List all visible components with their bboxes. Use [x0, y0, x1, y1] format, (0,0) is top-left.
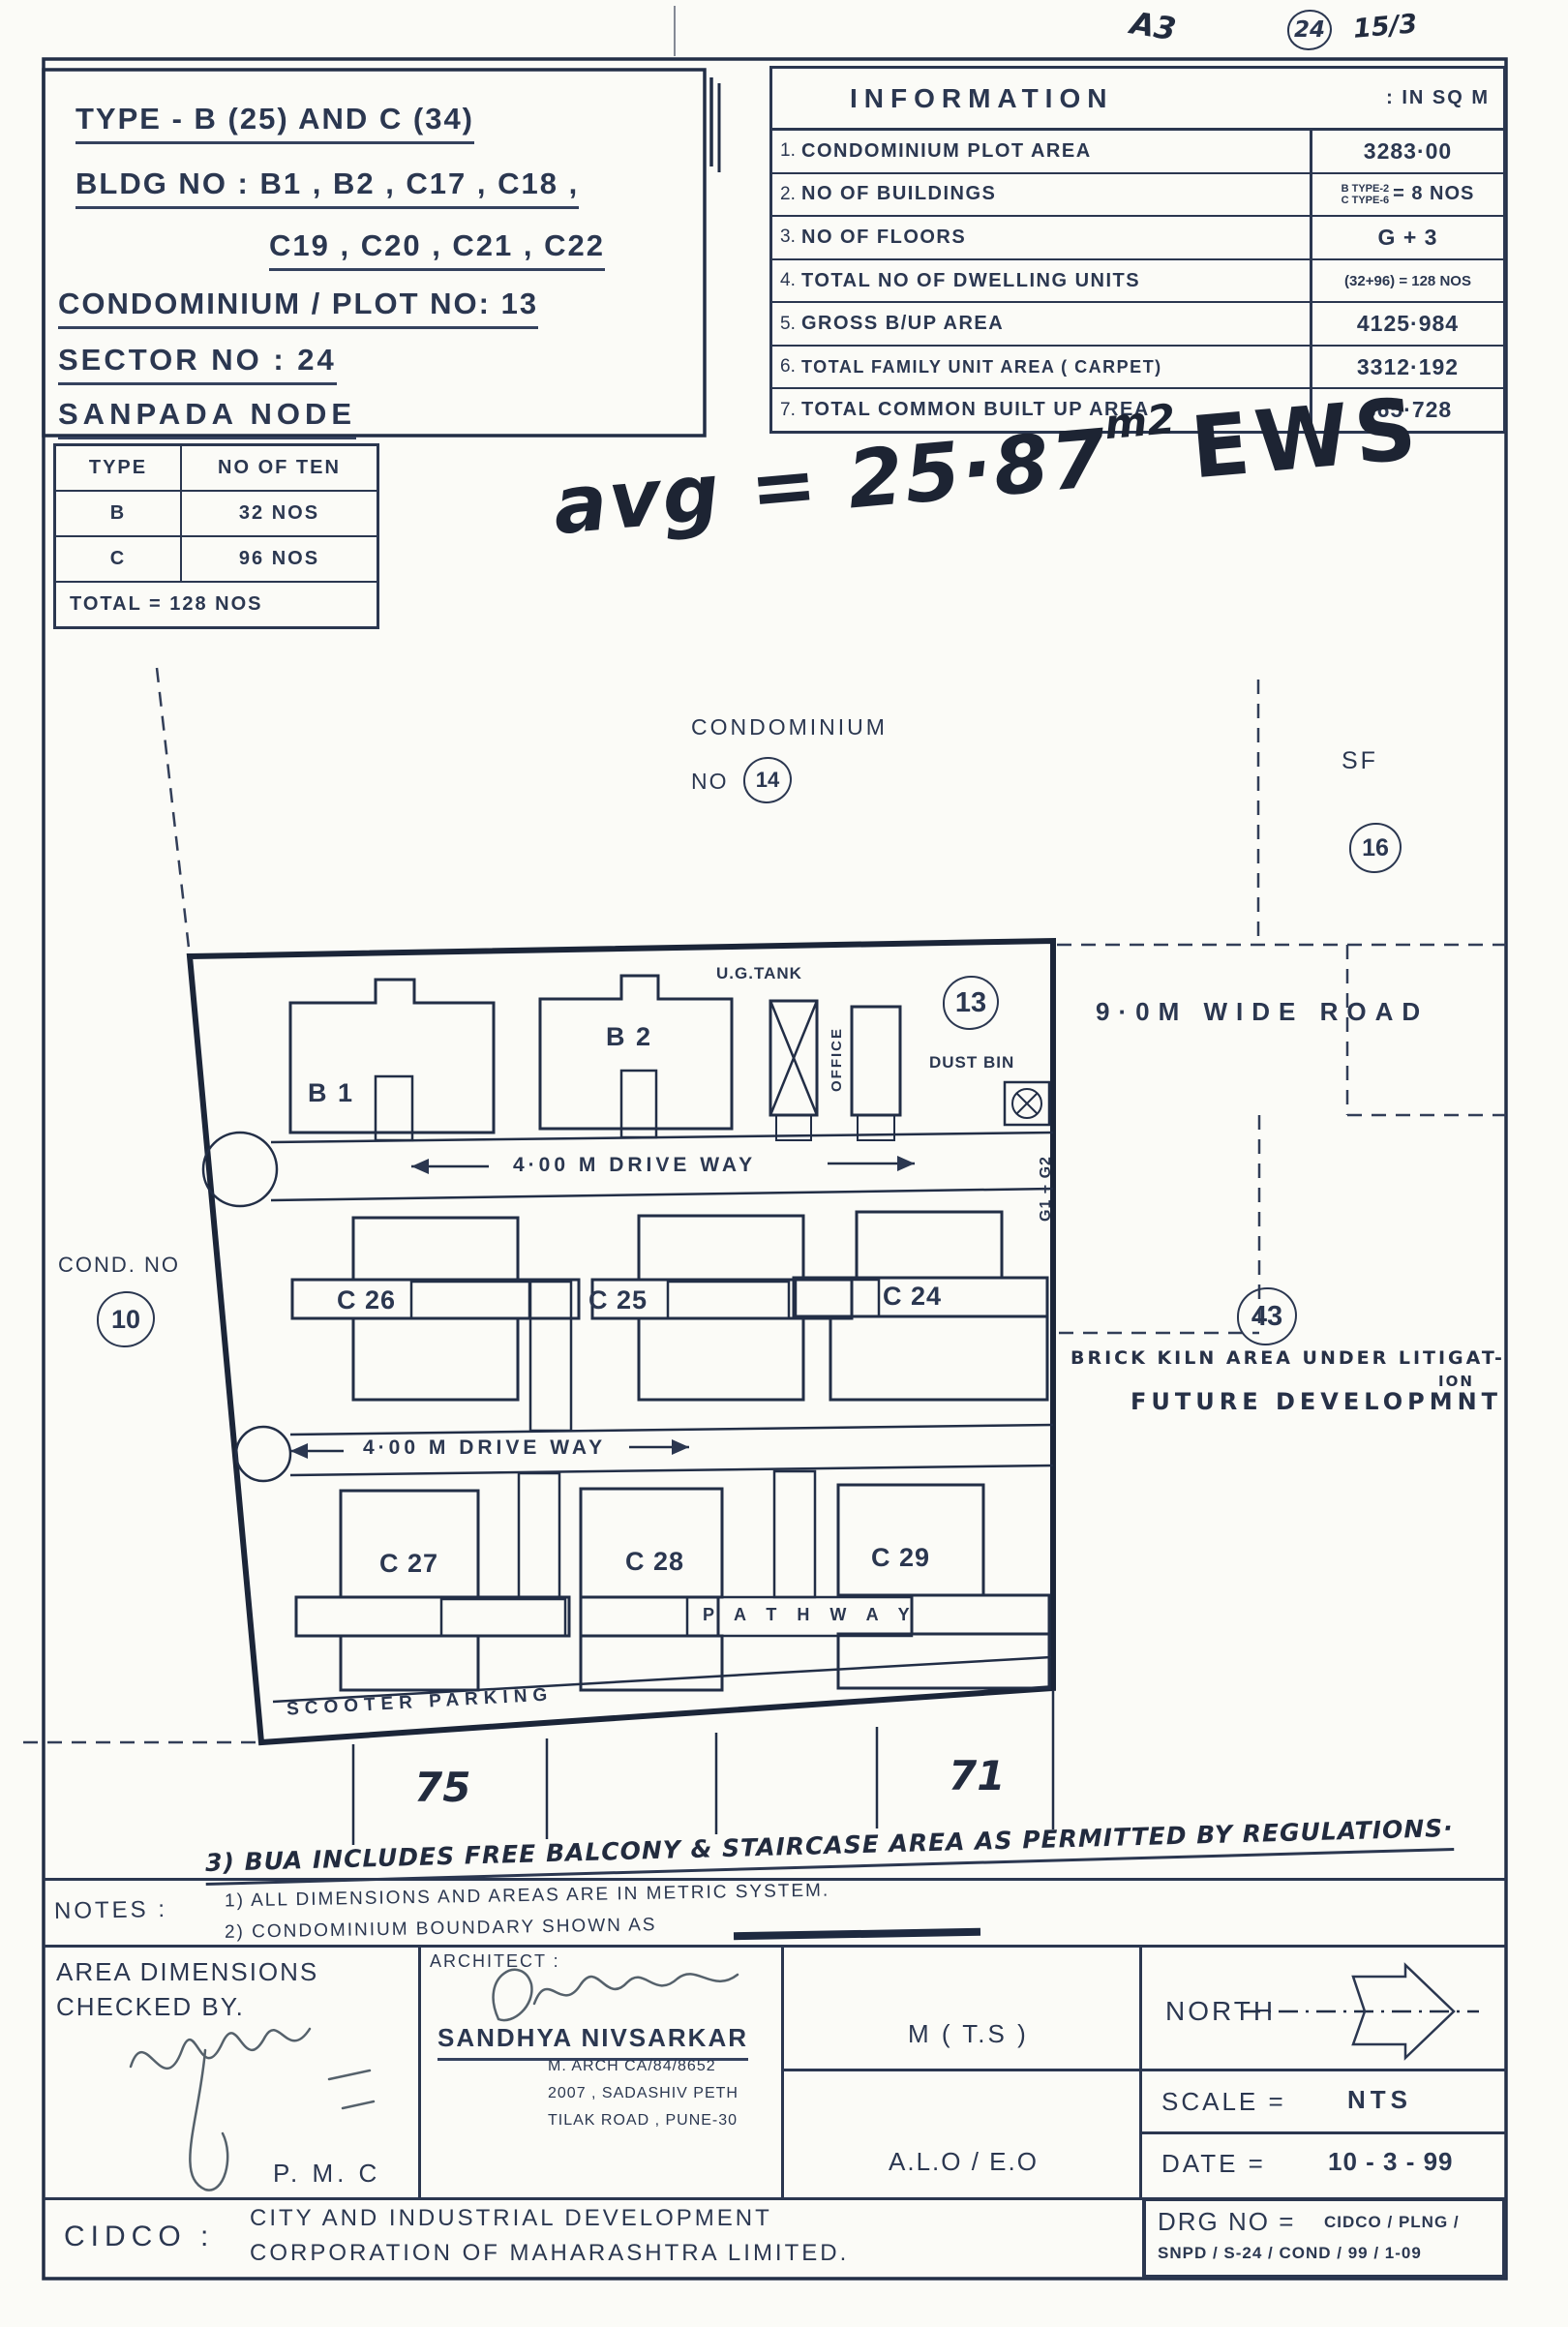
info-row-4-value: (32+96) = 128 NOS [1310, 260, 1503, 302]
type-table-header: TYPE NO OF TEN [56, 446, 377, 492]
info-row-3-value-text: G + 3 [1378, 225, 1438, 251]
building-b2-outline [540, 976, 732, 1129]
driveway2-arrowhead-left [290, 1443, 308, 1459]
info-row-2-sub2: C TYPE-6 [1342, 195, 1390, 206]
c26-stair-strip [411, 1282, 529, 1318]
type-total: TOTAL = 128 NOS [56, 583, 377, 626]
info-row-2-value-text: = 8 NOS [1393, 183, 1474, 205]
north-label: NORTH [1165, 1996, 1276, 2027]
info-row-7-no: 7. [772, 389, 801, 431]
ug-tank-label: U.G.TANK [716, 964, 802, 983]
info-row-1: 1. CONDOMINIUM PLOT AREA 3283·00 [772, 131, 1503, 174]
scale-label: SCALE = [1161, 2087, 1286, 2117]
info-row-2-sub: B TYPE-2C TYPE-6 [1342, 183, 1390, 206]
architect-name: SANDHYA NIVSARKAR [437, 2023, 748, 2061]
building-c28-label: C 28 [625, 1547, 684, 1577]
driveway1-arrowhead-right [897, 1156, 915, 1171]
info-row-4-label: TOTAL NO OF DWELLING UNITS [801, 260, 1310, 302]
drg-no-label: DRG NO = [1158, 2207, 1295, 2237]
condominium-14-label: CONDOMINIUM [691, 714, 888, 740]
type-row-c: C 96 NOS [56, 537, 377, 583]
building-b2-label: B 2 [606, 1022, 652, 1052]
info-row-5-value-text: 4125·984 [1357, 311, 1459, 337]
info-row-4-no: 4. [772, 260, 801, 302]
info-row-6-value-text: 3312·192 [1357, 354, 1459, 380]
culdesac-1 [203, 1133, 277, 1206]
driveway1-arrowhead-left [411, 1159, 429, 1174]
c26-c25-stair-column [530, 1282, 571, 1431]
info-row-1-label: CONDOMINIUM PLOT AREA [801, 131, 1310, 172]
c27-c28-stair-column [519, 1473, 559, 1597]
information-table: INFORMATION : IN SQ M 1. CONDOMINIUM PLO… [769, 66, 1506, 434]
alo-eo-label: A.L.O / E.O [889, 2147, 1039, 2177]
checked-by-label-2: CHECKED BY. [56, 1992, 245, 2022]
info-row-2-sub1: B TYPE-2 [1342, 183, 1390, 195]
dust-bin-label: DUST BIN [929, 1053, 1014, 1073]
type-c: C [56, 537, 182, 581]
mts-cell [784, 1948, 1142, 2071]
dimension-71: 71 [949, 1752, 1005, 1799]
info-row-6-label: TOTAL FAMILY UNIT AREA ( CARPET) [801, 347, 1310, 388]
building-b1-label: B 1 [308, 1078, 354, 1108]
drg-no-value-2: SNPD / S-24 / COND / 99 / 1-09 [1158, 2244, 1422, 2263]
info-row-5-value: 4125·984 [1310, 303, 1503, 345]
driveway1-label: 4·00 M DRIVE WAY [513, 1154, 756, 1177]
driveway2-arrowhead-right [672, 1439, 689, 1455]
pmc-label: P. M. C [273, 2159, 380, 2189]
building-c26-label: C 26 [337, 1285, 396, 1315]
title-sector-line: SECTOR NO : 24 [58, 343, 337, 385]
title-bldg-line1: BLDG NO : B1 , B2 , C17 , C18 , [75, 166, 579, 209]
condominium-boundary [190, 941, 1053, 1742]
info-row-5: 5. GROSS B/UP AREA 4125·984 [772, 303, 1503, 347]
type-b-count: 32 NOS [182, 492, 377, 535]
mts-label: M ( T.S ) [908, 2019, 1029, 2049]
date-value: 10 - 3 - 99 [1328, 2147, 1454, 2177]
info-title: INFORMATION [850, 83, 1113, 114]
info-row-2-value: B TYPE-2C TYPE-6 = 8 NOS [1310, 174, 1503, 216]
c25-stair-strip [668, 1282, 789, 1318]
drg-no-value-1: CIDCO / PLNG / [1324, 2213, 1460, 2232]
info-row-2: 2. NO OF BUILDINGS B TYPE-2C TYPE-6 = 8 … [772, 174, 1503, 218]
building-c26-outline [292, 1218, 579, 1400]
info-row-5-no: 5. [772, 303, 801, 345]
architect-registration: M. ARCH CA/84/8652 [548, 2058, 716, 2075]
architect-label: ARCHITECT : [430, 1951, 560, 1972]
info-row-1-value-text: 3283·00 [1364, 138, 1452, 165]
driveway1-bottom [271, 1189, 1053, 1200]
info-row-1-value: 3283·00 [1310, 131, 1503, 172]
wide-road-label: 9·0M WIDE ROAD [1096, 997, 1429, 1027]
info-row-6-no: 6. [772, 347, 801, 388]
info-unit: : IN SQ M [1386, 87, 1490, 109]
building-c29-label: C 29 [871, 1543, 930, 1573]
office-stair [858, 1115, 894, 1140]
building-c29-outline [838, 1485, 1049, 1688]
brick-kiln-label: BRICK KILN AREA UNDER LITIGAT- [1070, 1347, 1505, 1369]
type-row-b: B 32 NOS [56, 492, 377, 537]
avg-unit: m2 [1102, 395, 1177, 448]
condominium-14-no-label: NO [691, 769, 729, 795]
info-row-2-no: 2. [772, 174, 801, 216]
pathway-label: P A T H W A Y [703, 1605, 918, 1625]
type-b: B [56, 492, 182, 535]
culdesac-2 [236, 1427, 290, 1481]
cidco-label: CIDCO : [64, 2221, 214, 2253]
info-row-4: 4. TOTAL NO OF DWELLING UNITS (32+96) = … [772, 260, 1503, 304]
g1-g2-label: G1 + G2 [1038, 1156, 1055, 1222]
title-condo-line: CONDOMINIUM / PLOT NO: 13 [58, 287, 538, 329]
type-header-count: NO OF TEN [182, 446, 377, 490]
type-table: TYPE NO OF TEN B 32 NOS C 96 NOS TOTAL =… [53, 443, 379, 629]
cond-no-10-label: COND. NO [58, 1253, 180, 1278]
sf-label: SF [1342, 747, 1378, 775]
date-label: DATE = [1161, 2149, 1266, 2179]
c27-stair-strip [441, 1599, 565, 1636]
info-row-1-no: 1. [772, 131, 801, 172]
information-table-header: INFORMATION : IN SQ M [772, 69, 1503, 131]
driveway2-label: 4·00 M DRIVE WAY [363, 1436, 606, 1460]
scale-value: NTS [1347, 2085, 1412, 2115]
corporation-line-2: CORPORATION OF MAHARASHTRA LIMITED. [250, 2240, 849, 2267]
building-c27-outline [296, 1491, 569, 1690]
title-type-line: TYPE - B (25) AND C (34) [75, 102, 474, 144]
building-c27-label: C 27 [379, 1549, 438, 1579]
drawing-sheet: A3 24 15/3 TYPE - B (25) AND C (34) BLDG… [0, 0, 1568, 2327]
info-row-2-label: NO OF BUILDINGS [801, 174, 1310, 216]
title-node-line: SANPADA NODE [58, 397, 356, 439]
driveway2-bottom [290, 1466, 1053, 1475]
info-row-3-label: NO OF FLOORS [801, 217, 1310, 258]
future-development-label: FUTURE DEVELOPMNT [1131, 1388, 1502, 1415]
building-b1-outline [290, 980, 494, 1133]
dashed-boundary-left [157, 668, 190, 956]
building-c28-outline [581, 1489, 722, 1690]
architect-address-2: TILAK ROAD , PUNE-30 [548, 2112, 738, 2130]
office-box [852, 1007, 900, 1115]
building-c25-label: C 25 [588, 1285, 648, 1315]
info-row-3-no: 3. [772, 217, 801, 258]
avg-ews-label: EWS [1187, 378, 1426, 498]
checked-by-label-1: AREA DIMENSIONS [56, 1957, 318, 1987]
margin-mark: A3 [1128, 5, 1178, 48]
corporation-line-1: CITY AND INDUSTRIAL DEVELOPMENT [250, 2205, 772, 2232]
type-c-count: 96 NOS [182, 537, 377, 581]
info-row-5-label: GROSS B/UP AREA [801, 303, 1310, 345]
margin-date-note: 15/3 [1352, 9, 1419, 45]
driveway2-top [290, 1425, 1053, 1435]
info-row-4-value-text: (32+96) = 128 NOS [1344, 273, 1471, 289]
info-row-3-value: G + 3 [1310, 217, 1503, 258]
type-header-type: TYPE [56, 446, 182, 490]
building-b1-stair [376, 1076, 412, 1140]
c28-c29-stair-column [774, 1471, 815, 1597]
building-c24-label: C 24 [883, 1282, 942, 1312]
dimension-75: 75 [414, 1764, 470, 1811]
office-label: OFFICE [829, 1027, 845, 1092]
architect-address-1: 2007 , SADASHIV PETH [548, 2085, 739, 2102]
type-row-total: TOTAL = 128 NOS [56, 583, 377, 626]
notes-label: NOTES : [54, 1896, 167, 1925]
c24-stair-strip [796, 1280, 879, 1316]
title-bldg-line2: C19 , C20 , C21 , C22 [269, 228, 605, 271]
info-row-3: 3. NO OF FLOORS G + 3 [772, 217, 1503, 260]
